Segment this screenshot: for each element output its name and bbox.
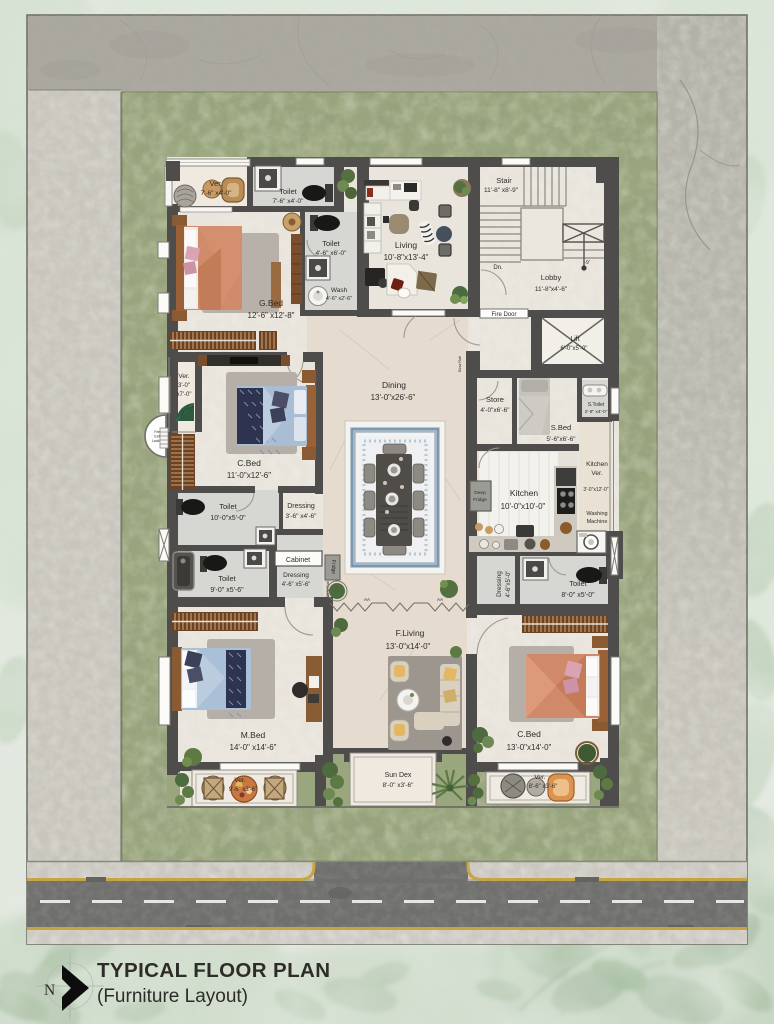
svg-text:Machine: Machine bbox=[587, 519, 608, 525]
svg-text:C.Bed: C.Bed bbox=[517, 729, 541, 739]
svg-text:3'-6" x4'-6": 3'-6" x4'-6" bbox=[286, 513, 318, 520]
svg-text:AA: AA bbox=[437, 597, 443, 602]
svg-text:Store: Store bbox=[486, 395, 504, 404]
svg-text:Cabinet: Cabinet bbox=[286, 557, 310, 564]
svg-text:6'-0"x5'-0": 6'-0"x5'-0" bbox=[561, 346, 588, 352]
svg-text:Kitchen: Kitchen bbox=[586, 461, 608, 468]
svg-text:Toilet: Toilet bbox=[218, 574, 236, 583]
svg-text:3'-0": 3'-0" bbox=[178, 383, 190, 389]
svg-text:Ver.: Ver. bbox=[234, 777, 245, 784]
svg-text:Stair: Stair bbox=[496, 176, 512, 185]
svg-text:M.Bed: M.Bed bbox=[241, 730, 266, 740]
svg-text:10'-8"x13'-4": 10'-8"x13'-4" bbox=[384, 253, 429, 262]
svg-text:Lift: Lift bbox=[570, 336, 579, 343]
svg-text:8'-6" x3'-6": 8'-6" x3'-6" bbox=[529, 784, 558, 790]
svg-text:Fridge: Fridge bbox=[330, 560, 336, 574]
svg-text:Ver.: Ver. bbox=[534, 774, 545, 781]
svg-text:TYPICAL FLOOR PLAN: TYPICAL FLOOR PLAN bbox=[97, 959, 330, 982]
svg-text:11'-8" x8'-9": 11'-8" x8'-9" bbox=[484, 187, 519, 194]
svg-text:10'-0"x10'-0": 10'-0"x10'-0" bbox=[501, 502, 546, 511]
svg-text:(Furniture Layout): (Furniture Layout) bbox=[97, 986, 248, 1007]
svg-text:Exit: Exit bbox=[154, 435, 159, 439]
svg-text:Dn.: Dn. bbox=[493, 265, 503, 271]
svg-text:10'-0"x5'-0": 10'-0"x5'-0" bbox=[210, 515, 246, 522]
svg-text:S.Toilet: S.Toilet bbox=[588, 402, 605, 408]
svg-text:Fridge: Fridge bbox=[473, 497, 487, 503]
svg-text:x7'-0": x7'-0" bbox=[177, 392, 192, 398]
svg-text:5'-6"x6'-6": 5'-6"x6'-6" bbox=[546, 436, 576, 443]
svg-text:-9': -9' bbox=[584, 260, 589, 266]
svg-text:Blow Rail: Blow Rail bbox=[326, 581, 330, 597]
svg-text:Lobby: Lobby bbox=[541, 273, 562, 282]
svg-text:Dressing: Dressing bbox=[283, 572, 309, 579]
svg-text:S.Bed: S.Bed bbox=[551, 423, 571, 432]
svg-text:Blow Rail: Blow Rail bbox=[458, 356, 462, 372]
svg-text:AA: AA bbox=[364, 597, 370, 602]
svg-text:Ver.: Ver. bbox=[178, 373, 189, 380]
svg-text:7'-6" x4'-0": 7'-6" x4'-0" bbox=[201, 190, 233, 197]
svg-text:4'-0"x6'-6": 4'-0"x6'-6" bbox=[480, 407, 510, 414]
svg-text:Kitchen: Kitchen bbox=[510, 488, 539, 498]
svg-text:11'-8"x4'-6": 11'-8"x4'-6" bbox=[535, 286, 568, 293]
svg-text:13'-0"x14'-0": 13'-0"x14'-0" bbox=[507, 743, 552, 752]
svg-text:F.Living: F.Living bbox=[396, 628, 425, 638]
svg-text:Dining: Dining bbox=[382, 380, 406, 390]
svg-text:Ver.: Ver. bbox=[210, 179, 223, 188]
svg-text:Toilet: Toilet bbox=[322, 239, 340, 248]
svg-text:4'-6" x2'-6": 4'-6" x2'-6" bbox=[326, 296, 352, 302]
svg-text:4'-6" x6'-0": 4'-6" x6'-0" bbox=[316, 250, 348, 257]
svg-text:Toilet: Toilet bbox=[569, 579, 587, 588]
svg-text:11'-0"x12'-6": 11'-0"x12'-6" bbox=[227, 471, 271, 480]
svg-text:7'-6" x4'-0": 7'-6" x4'-0" bbox=[273, 198, 305, 205]
svg-text:3'-0"x12'-0": 3'-0"x12'-0" bbox=[583, 487, 608, 493]
svg-text:13'-0"x26'-6": 13'-0"x26'-6" bbox=[371, 393, 416, 402]
svg-text:4'-6" x5'-6": 4'-6" x5'-6" bbox=[282, 582, 311, 588]
svg-text:Sun Dex: Sun Dex bbox=[385, 772, 412, 779]
svg-text:Dressing: Dressing bbox=[287, 503, 315, 510]
svg-text:Toilet: Toilet bbox=[279, 187, 297, 196]
svg-text:12'-6" x12'-8": 12'-6" x12'-8" bbox=[248, 311, 295, 320]
svg-text:Deep: Deep bbox=[474, 490, 486, 496]
svg-text:Fire Door: Fire Door bbox=[491, 312, 516, 318]
svg-text:8'-0" x5'-0": 8'-0" x5'-0" bbox=[561, 592, 595, 599]
svg-text:Ver.: Ver. bbox=[591, 470, 602, 477]
svg-text:Living: Living bbox=[395, 240, 417, 250]
svg-text:Dressing: Dressing bbox=[496, 571, 503, 597]
svg-text:9'-0" x5'-6": 9'-0" x5'-6" bbox=[210, 587, 244, 594]
svg-text:C.Bed: C.Bed bbox=[237, 458, 261, 468]
svg-text:14'-0" x14'-6": 14'-0" x14'-6" bbox=[230, 743, 277, 752]
svg-text:Toilet: Toilet bbox=[219, 502, 237, 511]
svg-text:8'-0" x3'-6": 8'-0" x3'-6" bbox=[383, 782, 415, 789]
svg-text:G.Bed: G.Bed bbox=[259, 298, 283, 308]
svg-text:Washing: Washing bbox=[586, 511, 607, 517]
svg-text:Fire: Fire bbox=[154, 430, 160, 434]
svg-text:N: N bbox=[44, 982, 55, 999]
svg-text:Wash: Wash bbox=[331, 287, 348, 294]
svg-text:9'-6" x3'-6": 9'-6" x3'-6" bbox=[229, 787, 258, 793]
svg-text:2'-9" x4'-0": 2'-9" x4'-0" bbox=[585, 409, 608, 415]
svg-text:4'-6"x5'-0": 4'-6"x5'-0" bbox=[506, 571, 512, 598]
svg-text:13'-0"x14'-0": 13'-0"x14'-0" bbox=[386, 642, 431, 651]
